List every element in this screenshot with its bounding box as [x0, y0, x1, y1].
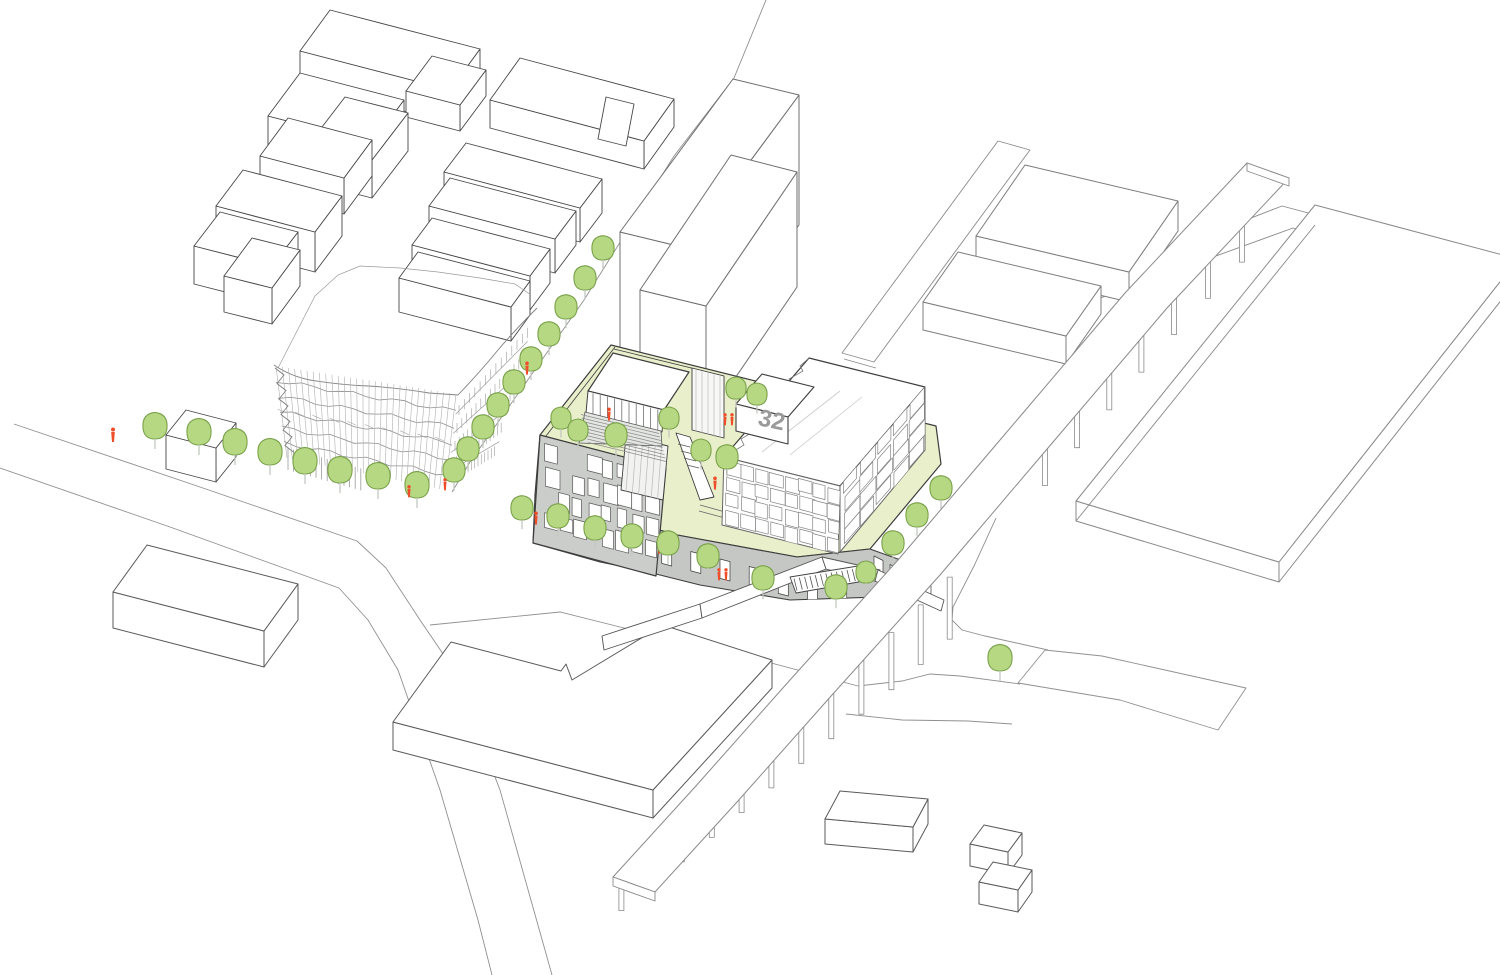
- svg-text:32: 32: [756, 404, 788, 436]
